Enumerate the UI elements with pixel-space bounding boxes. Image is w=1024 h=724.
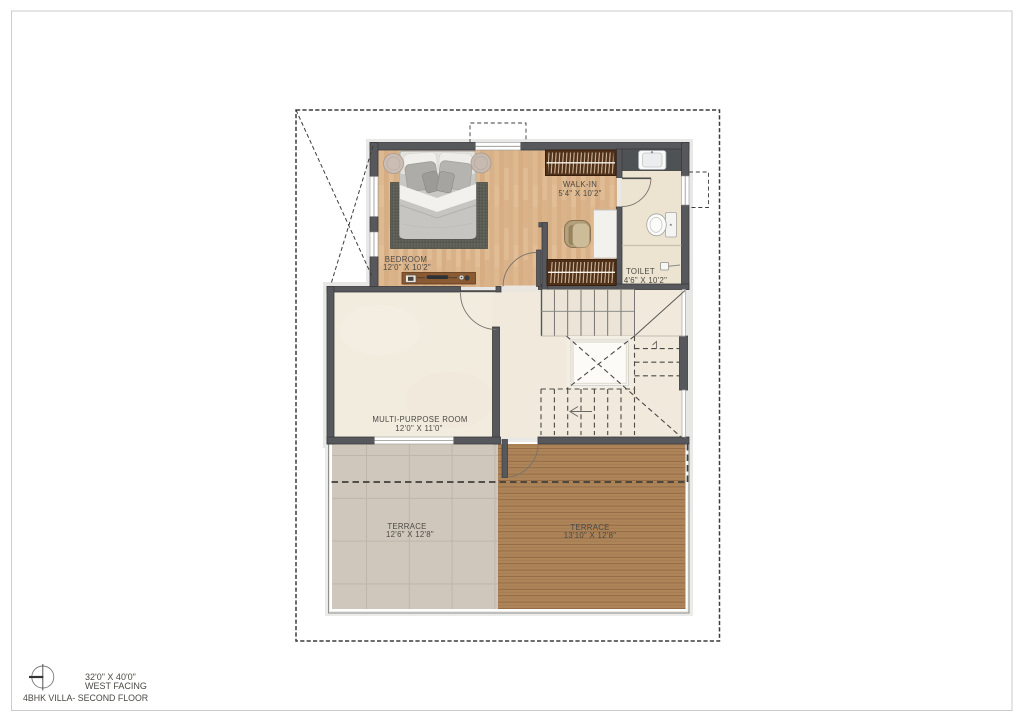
svg-text:WALK-IN: WALK-IN	[563, 180, 597, 189]
svg-text:4BHK VILLA- SECOND FLOOR: 4BHK VILLA- SECOND FLOOR	[23, 693, 148, 703]
svg-text:MULTI-PURPOSE ROOM: MULTI-PURPOSE ROOM	[372, 415, 467, 424]
svg-text:TOILET: TOILET	[626, 267, 655, 276]
svg-text:12'0" X 11'0": 12'0" X 11'0"	[395, 424, 442, 433]
svg-text:5'4" X 10'2": 5'4" X 10'2"	[558, 189, 601, 198]
svg-text:WEST FACING: WEST FACING	[85, 681, 147, 691]
svg-text:4'6" X 10'2": 4'6" X 10'2"	[624, 276, 667, 285]
svg-text:12'6" X 12'8": 12'6" X 12'8"	[386, 530, 434, 539]
svg-text:12'0" X 10'2": 12'0" X 10'2"	[383, 263, 431, 272]
svg-text:13'10" X 12'8": 13'10" X 12'8"	[564, 531, 617, 540]
